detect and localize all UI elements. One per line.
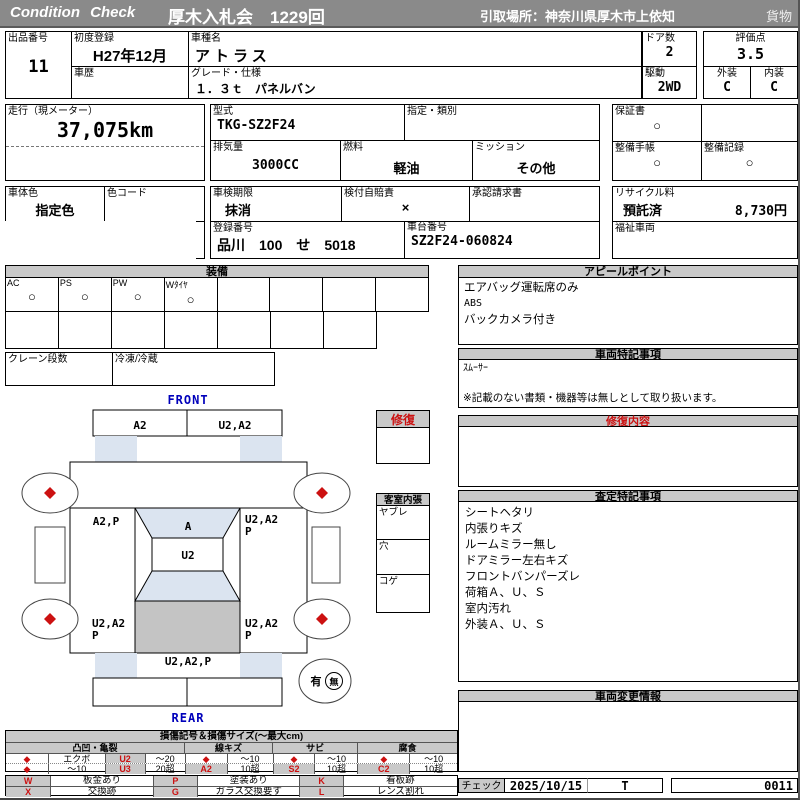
group-corrosion: 腐食	[358, 743, 457, 753]
equipment-wtire-label: Wﾀｲﾔ	[165, 278, 217, 291]
mark-code-row-2: X 交換跡 G ガラス交換要す L レンズ割れ	[6, 787, 457, 797]
interior-grade-label: 内装	[751, 67, 797, 80]
reefer-label: 冷凍/冷蔵	[113, 353, 274, 366]
front-label: FRONT	[167, 393, 208, 407]
designation-label: 指定・類別	[405, 105, 599, 118]
corrosion-r1-size: 〜10	[410, 754, 457, 763]
equipment-wtire-mark: ○	[165, 292, 217, 307]
vehicle-notes-body: ｽﾑｰｻｰ ※記載のない書類・機器等は無しとして取り扱います。	[458, 359, 798, 408]
field-first-registration: 初度登録 H27年12月	[71, 31, 189, 67]
first-registration-value: H27年12月	[72, 45, 188, 66]
group-rust: サビ	[273, 743, 358, 753]
mark-code-row-1: W 板金あり P 塗装あり K 看板跡	[6, 776, 457, 787]
equipment-cell-r2-6	[271, 312, 324, 348]
transmission-label: ミッション	[473, 141, 599, 154]
corrosion-code: C2	[358, 764, 410, 774]
cabin-burn-cell: コゲ	[376, 574, 430, 613]
scratch-code: A2	[186, 764, 228, 774]
mark-desc-k: 看板跡	[344, 776, 457, 786]
mileage-label: 走行（現メーター）	[6, 105, 204, 118]
equipment-cell-wtire: Wﾀｲﾔ○	[165, 278, 218, 311]
mark-desc-w: 板金あり	[51, 776, 153, 786]
inspection-value: 抹消	[211, 200, 341, 219]
check-date: 2025/10/15	[505, 779, 587, 793]
scratch-r2-size: 10超	[228, 764, 274, 774]
history-label: 車歴	[72, 67, 188, 80]
color-code-label: 色コード	[105, 187, 204, 200]
crane-label: クレーン段数	[6, 353, 112, 366]
left-side-panel	[35, 527, 65, 583]
maintenance-book-value: ○	[613, 155, 701, 170]
rust-diamond-icon: ◆	[274, 754, 316, 763]
insurance-label: 検付自賠責	[342, 187, 469, 200]
grade-value: １．３ｔ パネルバン	[189, 80, 641, 97]
appeal-line: バックカメラ付き	[464, 312, 792, 328]
appeal-line: エアバッグ運転席のみ	[464, 280, 792, 296]
front-left-corner	[95, 436, 137, 462]
fuel-label: 燃料	[341, 141, 472, 154]
rear-right-corner	[240, 653, 282, 678]
equipment-cell-r2-5	[218, 312, 271, 348]
displacement-value: 3000CC	[211, 158, 340, 173]
equipment-cell-7	[323, 278, 376, 311]
field-doors: ドア数 2	[642, 31, 697, 67]
body-color-label: 車体色	[6, 187, 104, 200]
dent-r2-code: U3	[106, 764, 146, 774]
brand-logo: Condition Check	[10, 4, 135, 21]
field-grade: グレード・仕様 １．３ｔ パネルバン	[188, 66, 642, 99]
cabin-hole-label: 穴	[377, 540, 429, 553]
field-displacement: 排気量 3000CC	[210, 140, 341, 181]
corrosion-r2-size: 10超	[410, 764, 457, 774]
pickup-location: 引取場所：神奈川県厚木市上依知	[480, 6, 675, 25]
repair-content-body	[458, 426, 798, 487]
equipment-cell-8	[376, 278, 428, 311]
field-chassis-wrap	[0, 221, 196, 259]
field-model-code: 型式 TKG-SZ2F24	[210, 104, 405, 141]
group-scratch: 線キズ	[185, 743, 273, 753]
dent-r1-size: 〜20	[146, 754, 186, 763]
score-value: 3.5	[704, 45, 797, 63]
field-welfare: 福祉車両	[612, 221, 798, 259]
drive-value: 2WD	[643, 80, 696, 95]
title-bar: Condition Check 厚木入札会 1229回 引取場所：神奈川県厚木市…	[0, 0, 800, 28]
maintenance-record-label: 整備記録	[702, 142, 797, 155]
maintenance-record-value: ○	[702, 155, 797, 170]
car-damage-diagram: FRONT A2 U2,A2 A2,P A U2 U2,A2 P U2,A2 P…	[12, 392, 362, 728]
field-approval: 承認請求書	[469, 186, 600, 222]
rear-label: REAR	[172, 711, 205, 725]
damage-legend-row-1: ◆ エクボ U2 〜20 ◆ 〜10 ◆ 〜10 ◆ 〜10	[6, 754, 457, 764]
recycle-fee-label: リサイクル料	[613, 187, 797, 200]
assessment-line: シートヘタリ	[465, 505, 791, 521]
front-bumper-right-damage: U2,A2	[218, 419, 251, 432]
cargo-box	[135, 601, 240, 653]
check-number: 0011	[672, 779, 797, 793]
cabin-burn-label: コゲ	[377, 575, 429, 588]
field-crane: クレーン段数	[5, 352, 113, 386]
equipment-cell-6	[270, 278, 323, 311]
equipment-pw-label: PW	[112, 278, 164, 288]
assessment-line: 荷箱Ａ、Ｕ、Ｓ	[465, 585, 791, 601]
mark-desc-g: ガラス交換要す	[198, 787, 300, 797]
change-info-body	[458, 701, 798, 772]
presence-no-label: 無	[329, 676, 338, 688]
damage-legend: 損傷記号＆損傷サイズ(〜最大cm) 凸凹・亀裂 線キズ サビ 腐食 ◆ エクボ …	[5, 730, 458, 772]
equipment-cell-r2-2	[59, 312, 112, 348]
field-score: 評価点 3.5	[703, 31, 798, 67]
front-bumper-left-damage: A2	[133, 419, 146, 432]
cabin-tear-cell: ヤブレ	[376, 505, 430, 540]
check-inspector: T	[588, 779, 662, 793]
mark-code-k: K	[300, 776, 343, 786]
chassis-label: 車台番号	[405, 221, 600, 234]
equipment-cell-ac: AC○	[6, 278, 59, 311]
corrosion-diamond-icon: ◆	[358, 754, 410, 763]
mark-desc-p: 塗装あり	[198, 776, 300, 786]
field-transmission: ミッション その他	[472, 140, 600, 181]
field-mileage: 走行（現メーター） 37,075km	[5, 104, 205, 181]
windshield-damage: A	[185, 520, 192, 533]
grade-label: グレード・仕様	[189, 67, 641, 80]
rear-right-damage-2: P	[245, 629, 252, 642]
equipment-cell-ps: PS○	[59, 278, 112, 311]
equipment-cell-r2-1	[6, 312, 59, 348]
dent-r2-name: 〜10	[49, 764, 106, 774]
check-date-cell: 2025/10/15	[504, 778, 588, 793]
field-reefer: 冷凍/冷蔵	[112, 352, 275, 386]
rear-left-damage-2: P	[92, 629, 99, 642]
approval-label: 承認請求書	[470, 187, 599, 200]
damage-legend-groups: 凸凹・亀裂 線キズ サビ 腐食	[6, 743, 457, 754]
mark-code-p: P	[154, 776, 198, 786]
presence-yes-label: 有	[311, 674, 322, 688]
rust-r1-size: 〜10	[315, 754, 358, 763]
right-side-panel	[312, 527, 340, 583]
mid-left-damage: A2,P	[93, 515, 120, 528]
damage-legend-title: 損傷記号＆損傷サイズ(〜最大cm)	[6, 731, 457, 743]
dent-r1-name: エクボ	[49, 754, 106, 763]
equipment-ps-label: PS	[59, 278, 111, 288]
model-name-value: アトラス	[189, 45, 641, 66]
field-color-code: 色コード	[104, 186, 205, 222]
repair-box-title: 修復	[376, 410, 430, 428]
recycle-status-value: 預託済	[623, 200, 662, 219]
transmission-value: その他	[473, 158, 599, 177]
model-code-value: TKG-SZ2F24	[211, 118, 404, 133]
repair-box-body	[376, 427, 430, 464]
front-right-corner	[240, 436, 282, 462]
rust-r2-size: 10超	[315, 764, 358, 774]
cabin-hole-cell: 穴	[376, 539, 430, 575]
drive-label: 駆動	[643, 67, 696, 80]
inspection-label: 車検期限	[211, 187, 341, 200]
dent-r2-size: 20超	[146, 764, 186, 774]
field-chassis: 車台番号 SZ2F24-060824	[404, 221, 600, 259]
group-dent: 凸凹・亀裂	[6, 743, 185, 753]
welfare-label: 福祉車両	[613, 222, 797, 235]
doors-value: 2	[643, 45, 696, 60]
field-history: 車歴	[71, 66, 189, 99]
maintenance-book-label: 整備手帳	[613, 142, 701, 155]
assessment-line: ルームミラー無し	[465, 537, 791, 553]
damage-legend-row-2: ◆ 〜10 U3 20超 A2 10超 S2 10超 C2 10超	[6, 764, 457, 774]
interior-grade-value: C	[751, 80, 797, 95]
dent-large-diamond-icon: ◆	[6, 764, 49, 774]
mark-code-x: X	[6, 787, 51, 797]
field-warranty: 保証書 ○	[612, 104, 702, 142]
field-designation: 指定・類別	[404, 104, 600, 141]
fuel-value: 軽油	[341, 158, 472, 177]
vehicle-category: 貨物	[766, 6, 792, 25]
check-number-cell: 0011	[671, 778, 798, 793]
assessment-line: フロントバンパーズレ	[465, 569, 791, 585]
recycle-fee-value: 8,730円	[735, 200, 787, 219]
roof-damage: U2	[181, 549, 194, 562]
vehicle-notes-footnote: ※記載のない書類・機器等は無しとして取り扱います。	[463, 390, 722, 406]
assessment-line: 内張りキズ	[465, 521, 791, 537]
equipment-ps-mark: ○	[59, 289, 111, 304]
field-maintenance-book: 整備手帳 ○	[612, 141, 702, 181]
field-warranty-blank	[701, 104, 798, 142]
model-code-label: 型式	[211, 105, 404, 118]
cabin-tear-label: ヤブレ	[377, 506, 429, 519]
assessment-line: 室内汚れ	[465, 601, 791, 617]
appeal-line: ABS	[464, 296, 792, 312]
equipment-pw-mark: ○	[112, 289, 164, 304]
mark-desc-x: 交換跡	[51, 787, 153, 797]
equipment-row-2	[5, 311, 377, 349]
rust-code: S2	[274, 764, 316, 774]
field-body-color: 車体色 指定色	[5, 186, 105, 222]
mark-code-g: G	[154, 787, 198, 797]
field-model-name: 車種名 アトラス	[188, 31, 642, 67]
rear-left-corner	[95, 653, 137, 678]
mark-code-l: L	[300, 787, 343, 797]
first-registration-label: 初度登録	[72, 32, 188, 45]
doors-label: ドア数	[643, 32, 696, 45]
exterior-grade-label: 外装	[704, 67, 750, 80]
assessment-line: ドアミラー左右キズ	[465, 553, 791, 569]
equipment-ac-label: AC	[6, 278, 58, 288]
check-label: チェック	[458, 778, 505, 793]
model-name-label: 車種名	[189, 32, 641, 45]
dent-r1-code: U2	[106, 754, 146, 763]
mid-right-damage-2: P	[245, 525, 252, 538]
field-drive: 駆動 2WD	[642, 66, 697, 99]
field-recycle-fee: リサイクル料 預託済 8,730円	[612, 186, 798, 222]
mileage-value: 37,075km	[6, 118, 204, 147]
warranty-value: ○	[613, 118, 701, 133]
equipment-cell-r2-7	[324, 312, 376, 348]
field-insurance: 検付自賠責 ×	[341, 186, 470, 222]
equipment-cell-r2-3	[112, 312, 165, 348]
lot-number-label: 出品番号	[6, 32, 71, 45]
mark-desc-l: レンズ割れ	[344, 787, 457, 797]
assessment-body: シートヘタリ 内張りキズ ルームミラー無し ドアミラー左右キズ フロントバンパー…	[458, 501, 798, 682]
lot-number-value: 11	[6, 57, 71, 77]
assessment-line: 外装Ａ、Ｕ、Ｓ	[465, 617, 791, 633]
field-maintenance-record: 整備記録 ○	[701, 141, 798, 181]
body-color-value: 指定色	[6, 200, 104, 219]
exterior-grade-value: C	[704, 80, 750, 95]
field-inspection: 車検期限 抹消	[210, 186, 342, 222]
displacement-label: 排気量	[211, 141, 340, 154]
auction-title: 厚木入札会 1229回	[168, 3, 325, 28]
equipment-ac-mark: ○	[6, 289, 58, 304]
appeal-body: エアバッグ運転席のみ ABS バックカメラ付き	[458, 277, 798, 345]
insurance-value: ×	[342, 200, 469, 215]
equipment-row-1: AC○ PS○ PW○ Wﾀｲﾔ○	[5, 277, 429, 312]
chassis-value: SZ2F24-060824	[405, 234, 600, 249]
warranty-label: 保証書	[613, 105, 701, 118]
equipment-cell-r2-4	[165, 312, 218, 348]
rear-panel-damage: U2,A2,P	[165, 655, 212, 668]
scratch-diamond-icon: ◆	[186, 754, 228, 763]
field-interior-grade: 内装 C	[750, 66, 798, 99]
field-exterior-grade: 外装 C	[703, 66, 751, 99]
score-label: 評価点	[704, 32, 797, 45]
equipment-cell-5	[218, 278, 271, 311]
field-lot-number: 出品番号 11	[5, 31, 72, 99]
mark-code-table: W 板金あり P 塗装あり K 看板跡 X 交換跡 G ガラス交換要す L レン…	[5, 775, 458, 796]
mark-code-w: W	[6, 776, 51, 786]
equipment-cell-pw: PW○	[112, 278, 165, 311]
auction-condition-sheet: Condition Check 厚木入札会 1229回 引取場所：神奈川県厚木市…	[0, 0, 800, 800]
dent-small-diamond-icon: ◆	[6, 754, 49, 763]
rear-window	[135, 571, 240, 601]
scratch-r1-size: 〜10	[228, 754, 274, 763]
field-fuel: 燃料 軽油	[340, 140, 473, 181]
vehicle-notes-line: ｽﾑｰｻｰ	[463, 361, 793, 377]
check-inspector-cell: T	[587, 778, 663, 793]
